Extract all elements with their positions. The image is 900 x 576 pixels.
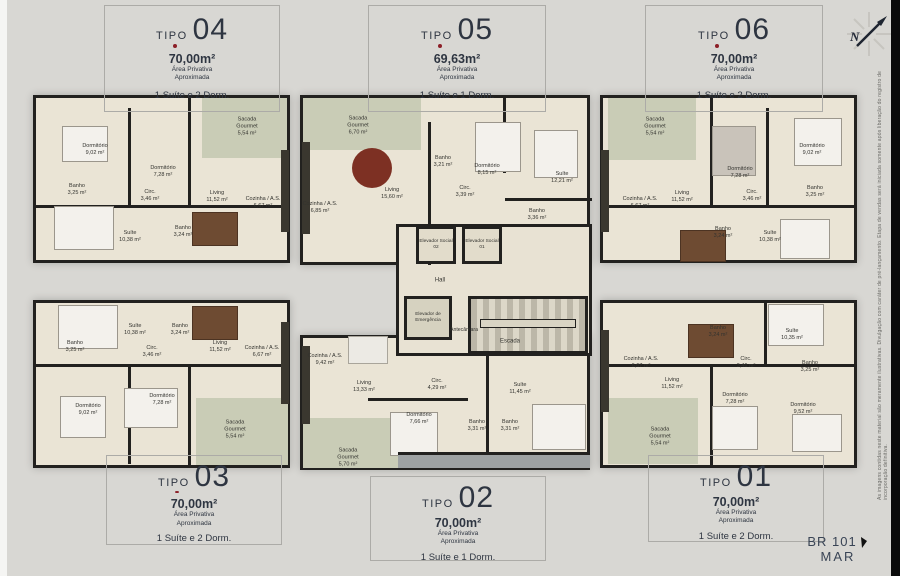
room-label: Living13,33 m²	[353, 380, 375, 394]
room-label: Circ.3,46 m²	[143, 345, 162, 359]
type-description: 1 Suíte e 2 Dorm.	[697, 90, 771, 101]
sea-label: MAR	[795, 549, 881, 564]
type-note: Área Privativa	[174, 511, 214, 519]
type-note: Aproximada	[175, 74, 210, 82]
bed-furniture	[794, 118, 842, 166]
room-label: Sacada Gourmet6,70 m²	[339, 116, 377, 137]
type-note: Aproximada	[717, 74, 752, 82]
room-label: Dormitório7,28 m²	[149, 393, 174, 407]
dining-table-furniture	[348, 336, 388, 364]
room-label: Dormitório9,02 m²	[75, 403, 100, 417]
wall	[188, 364, 191, 468]
kitchen-counter	[281, 150, 289, 232]
down-arrow-icon	[859, 537, 869, 549]
type-title: TIPO01	[700, 463, 772, 490]
room-label: Banho3,25 m²	[66, 340, 85, 354]
elevator-social-01-label: Elevador Social 01	[465, 239, 499, 251]
room-label: Suíte10,35 m²	[781, 328, 803, 342]
bed-furniture	[54, 206, 114, 250]
type-title: TIPO06	[698, 16, 770, 43]
room-label: Circ.3,39 m²	[456, 185, 475, 199]
type-note: Área Privativa	[172, 66, 212, 74]
type-description: 1 Suíte e 2 Dorm.	[699, 531, 773, 542]
room-label: Suíte11,45 m²	[509, 382, 530, 396]
right-edge-bar	[891, 0, 900, 576]
type-box-tipo-02: TIPO02 70,00m² Área Privativa Aproximada…	[370, 476, 546, 561]
room-label: Sacada Gourmet5,54 m²	[636, 117, 674, 138]
type-note: Área Privativa	[437, 66, 477, 74]
room-label: Banho3,25 m²	[801, 360, 820, 374]
room-label: Suíte10,38 m²	[124, 323, 146, 337]
kitchen-counter	[601, 330, 609, 412]
type-title: TIPO05	[421, 16, 493, 43]
kitchen-counter	[601, 150, 609, 232]
floor-plan-sheet: Dormitório9,02 m² Dormitório7,28 m² Saca…	[0, 0, 900, 576]
room-label: Dormitório7,66 m²	[406, 412, 431, 426]
room-label: Banho3,25 m²	[68, 183, 87, 197]
type-description: 1 Suíte e 2 Dorm.	[155, 90, 229, 101]
round-rug-furniture	[352, 148, 392, 188]
room-label: Sacada Gourmet5,54 m²	[641, 427, 679, 448]
wall	[764, 300, 767, 364]
room-label: Circ.3,46 m²	[141, 189, 160, 203]
accent-dot	[173, 44, 177, 48]
room-label: Sacada Gourmet5,54 m²	[228, 117, 266, 138]
room-label: Sacada Gourmet5,70 m²	[329, 448, 367, 469]
type-note: Área Privativa	[714, 66, 754, 74]
kitchen-counter	[302, 142, 310, 234]
left-margin	[0, 0, 7, 576]
road-label: BR 101 MAR	[795, 534, 881, 564]
wall	[368, 398, 468, 401]
dining-table-furniture	[192, 306, 238, 340]
svg-text:N: N	[849, 29, 860, 44]
type-note: Área Privativa	[716, 509, 756, 517]
room-label: Living11,52 m²	[661, 377, 682, 391]
room-label: Living11,52 m²	[206, 190, 227, 204]
wall	[505, 198, 592, 201]
wall	[128, 108, 131, 205]
type-box-tipo-01: TIPO01 70,00m² Área Privativa Aproximada…	[648, 455, 824, 542]
room-label: Dormitório8,15 m²	[474, 163, 499, 177]
room-label: Circ.4,29 m²	[428, 378, 447, 392]
room-label: Cozinha / A.S.6,67 m²	[243, 345, 281, 359]
bed-furniture	[792, 414, 842, 452]
type-area: 70,00m²	[711, 52, 758, 66]
type-title: TIPO02	[422, 484, 494, 511]
room-label: Banho3,24 m²	[174, 225, 193, 239]
room-label: Cozinha / A.S.6,67 m²	[621, 196, 659, 210]
stairs-label: Escada	[500, 338, 520, 346]
type-note: Aproximada	[719, 517, 754, 525]
type-box-tipo-05: TIPO05 69,63m² Área Privativa Aproximada…	[368, 5, 546, 112]
dining-table-furniture	[192, 212, 238, 246]
room-label: Cozinha / A.S.6,67 m²	[244, 196, 282, 210]
room-label: Cozinha / A.S.6,67 m²	[622, 356, 660, 370]
type-box-tipo-06: TIPO06 70,00m² Área Privativa Aproximada…	[645, 5, 823, 112]
type-area: 70,00m²	[435, 516, 482, 530]
type-box-tipo-04: TIPO04 70,00m² Área Privativa Aproximada…	[104, 5, 280, 112]
room-label: Circ.3,46 m²	[737, 356, 756, 370]
type-area: 69,63m²	[434, 52, 481, 66]
disclaimer-text: As imagens contidas neste material são m…	[877, 70, 889, 500]
type-area: 70,00m²	[713, 495, 760, 509]
ledge	[398, 452, 590, 468]
room-label: Banho3,36 m²	[528, 208, 547, 222]
room-label: Suíte12,21 m²	[551, 171, 573, 185]
type-title: TIPO04	[156, 16, 228, 43]
kitchen-counter	[281, 322, 289, 404]
type-description: 1 Suíte e 1 Dorm.	[420, 90, 494, 101]
room-label: Cozinha / A.S.9,42 m²	[306, 353, 344, 367]
room-label: Cozinha / A.S.6,85 m²	[301, 201, 339, 215]
wall	[33, 364, 289, 367]
room-label: Dormitório9,02 m²	[82, 143, 107, 157]
accent-dot	[438, 44, 442, 48]
bed-furniture	[532, 404, 586, 450]
wall	[766, 108, 769, 205]
room-label: Banho3,25 m²	[806, 185, 825, 199]
type-note: Aproximada	[177, 520, 212, 528]
accent-dot	[715, 44, 719, 48]
compass-north-icon: N	[843, 8, 895, 65]
bed-furniture	[780, 219, 830, 259]
room-label: Banho3,31 m²	[501, 419, 520, 433]
antechamber-label: Antecâmara	[450, 327, 478, 334]
emergency-elevator-label: Elevador de Emergência	[406, 312, 450, 324]
room-label: Sacada Gourmet5,54 m²	[216, 420, 254, 441]
hall-label: Hall	[435, 277, 445, 285]
room-label: Suíte10,38 m²	[119, 230, 141, 244]
type-note: Aproximada	[440, 74, 475, 82]
room-label: Living11,52 m²	[671, 190, 692, 204]
accent-dot	[175, 491, 179, 493]
room-label: Suíte10,38 m²	[759, 230, 781, 244]
type-box-tipo-03: TIPO03 70,00m² Área Privativa Aproximada…	[106, 455, 282, 545]
type-note: Aproximada	[441, 538, 476, 546]
room-label: Banho3,24 m²	[714, 226, 733, 240]
room-label: Dormitório9,02 m²	[799, 143, 824, 157]
room-label: Dormitório7,28 m²	[722, 392, 747, 406]
type-area: 70,00m²	[171, 497, 218, 511]
room-label: Banho3,31 m²	[468, 419, 487, 433]
room-label: Living15,60 m²	[381, 187, 403, 201]
room-label: Dormitório9,52 m²	[790, 402, 815, 416]
type-note: Área Privativa	[438, 530, 478, 538]
room-label: Circ.3,46 m²	[743, 189, 762, 203]
room-label: Dormitório7,28 m²	[727, 166, 752, 180]
elevator-social-02-label: Elevador Social 02	[419, 239, 453, 251]
room-label: Banho3,24 m²	[171, 323, 190, 337]
room-label: Banho3,24 m²	[709, 325, 728, 339]
type-area: 70,00m²	[169, 52, 216, 66]
room-label: Living11,52 m²	[209, 340, 230, 354]
room-label: Dormitório7,28 m²	[150, 165, 175, 179]
type-description: 1 Suíte e 1 Dorm.	[421, 552, 495, 563]
room-label: Banho3,21 m²	[434, 155, 453, 169]
type-description: 1 Suíte e 2 Dorm.	[157, 533, 231, 544]
type-title: TIPO03	[158, 463, 230, 490]
bed-furniture	[712, 406, 758, 450]
road-name: BR 101	[807, 534, 856, 549]
stairs-landing	[480, 319, 576, 328]
